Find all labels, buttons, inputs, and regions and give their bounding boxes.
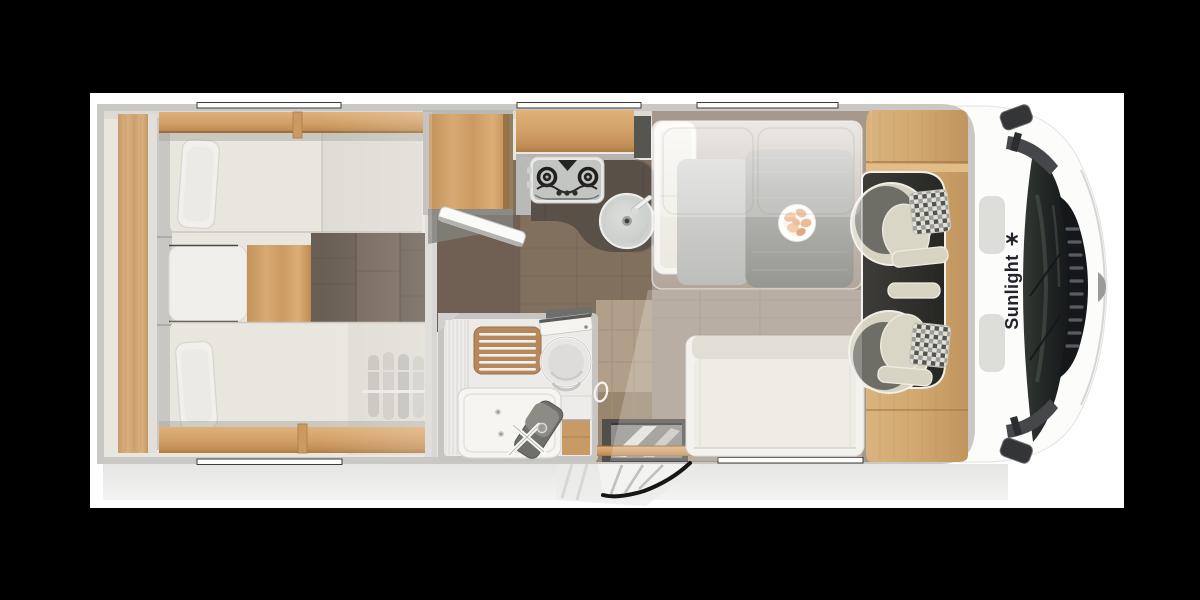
svg-text:Sunlight: Sunlight (1002, 254, 1022, 329)
